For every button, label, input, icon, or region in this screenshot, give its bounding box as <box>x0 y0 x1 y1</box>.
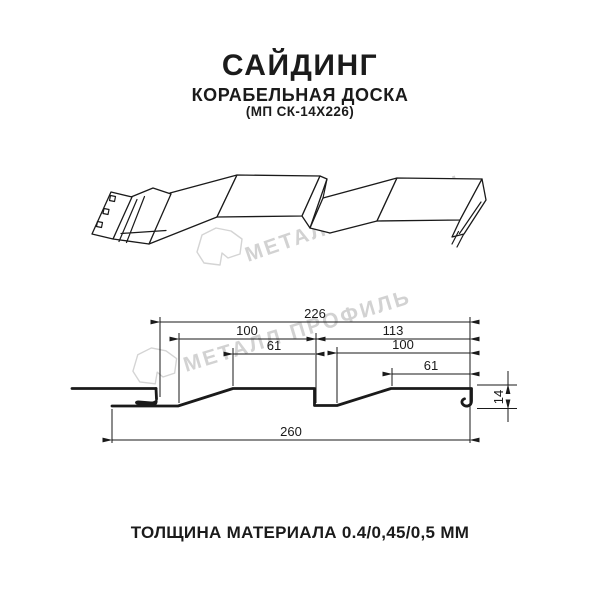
dim-label-61-right: 61 <box>424 358 438 373</box>
panel-outline <box>112 389 472 407</box>
dim-label-100-left: 100 <box>236 323 258 338</box>
dim-14: 14 <box>491 371 508 422</box>
product-subtitle: КОРАБЕЛЬНАЯ ДОСКА <box>0 85 600 106</box>
watermark-lower: МЕТАЛЛ ПРОФИЛЬ <box>133 286 414 384</box>
dim-260: 260 <box>112 424 470 440</box>
dim-label-226: 226 <box>304 306 326 321</box>
dim-226: 226 <box>160 306 470 322</box>
metall-profil-logo-icon <box>197 228 242 265</box>
product-model: (МП СК-14Х226) <box>0 104 600 119</box>
dim-label-100-right: 100 <box>392 337 414 352</box>
dim-label-113: 113 <box>383 323 404 338</box>
drawing-sheet: МЕТАЛЛ ПРОФИЛЬ МЕТАЛЛ ПРОФИЛЬ <box>0 0 600 600</box>
cross-section-profile <box>72 389 472 407</box>
dim-label-61-left: 61 <box>267 338 281 353</box>
page-title: САЙДИНГ <box>0 49 600 83</box>
dim-label-14: 14 <box>491 390 506 404</box>
dim-label-260: 260 <box>280 424 302 439</box>
material-thickness-note: ТОЛЩИНА МАТЕРИАЛА 0.4/0,45/0,5 ММ <box>0 523 600 543</box>
watermark-text: МЕТАЛЛ ПРОФИЛЬ <box>181 286 414 377</box>
dim-61-right: 61 <box>392 358 470 374</box>
metall-profil-logo-icon <box>133 348 177 384</box>
lock-drop <box>156 389 157 400</box>
